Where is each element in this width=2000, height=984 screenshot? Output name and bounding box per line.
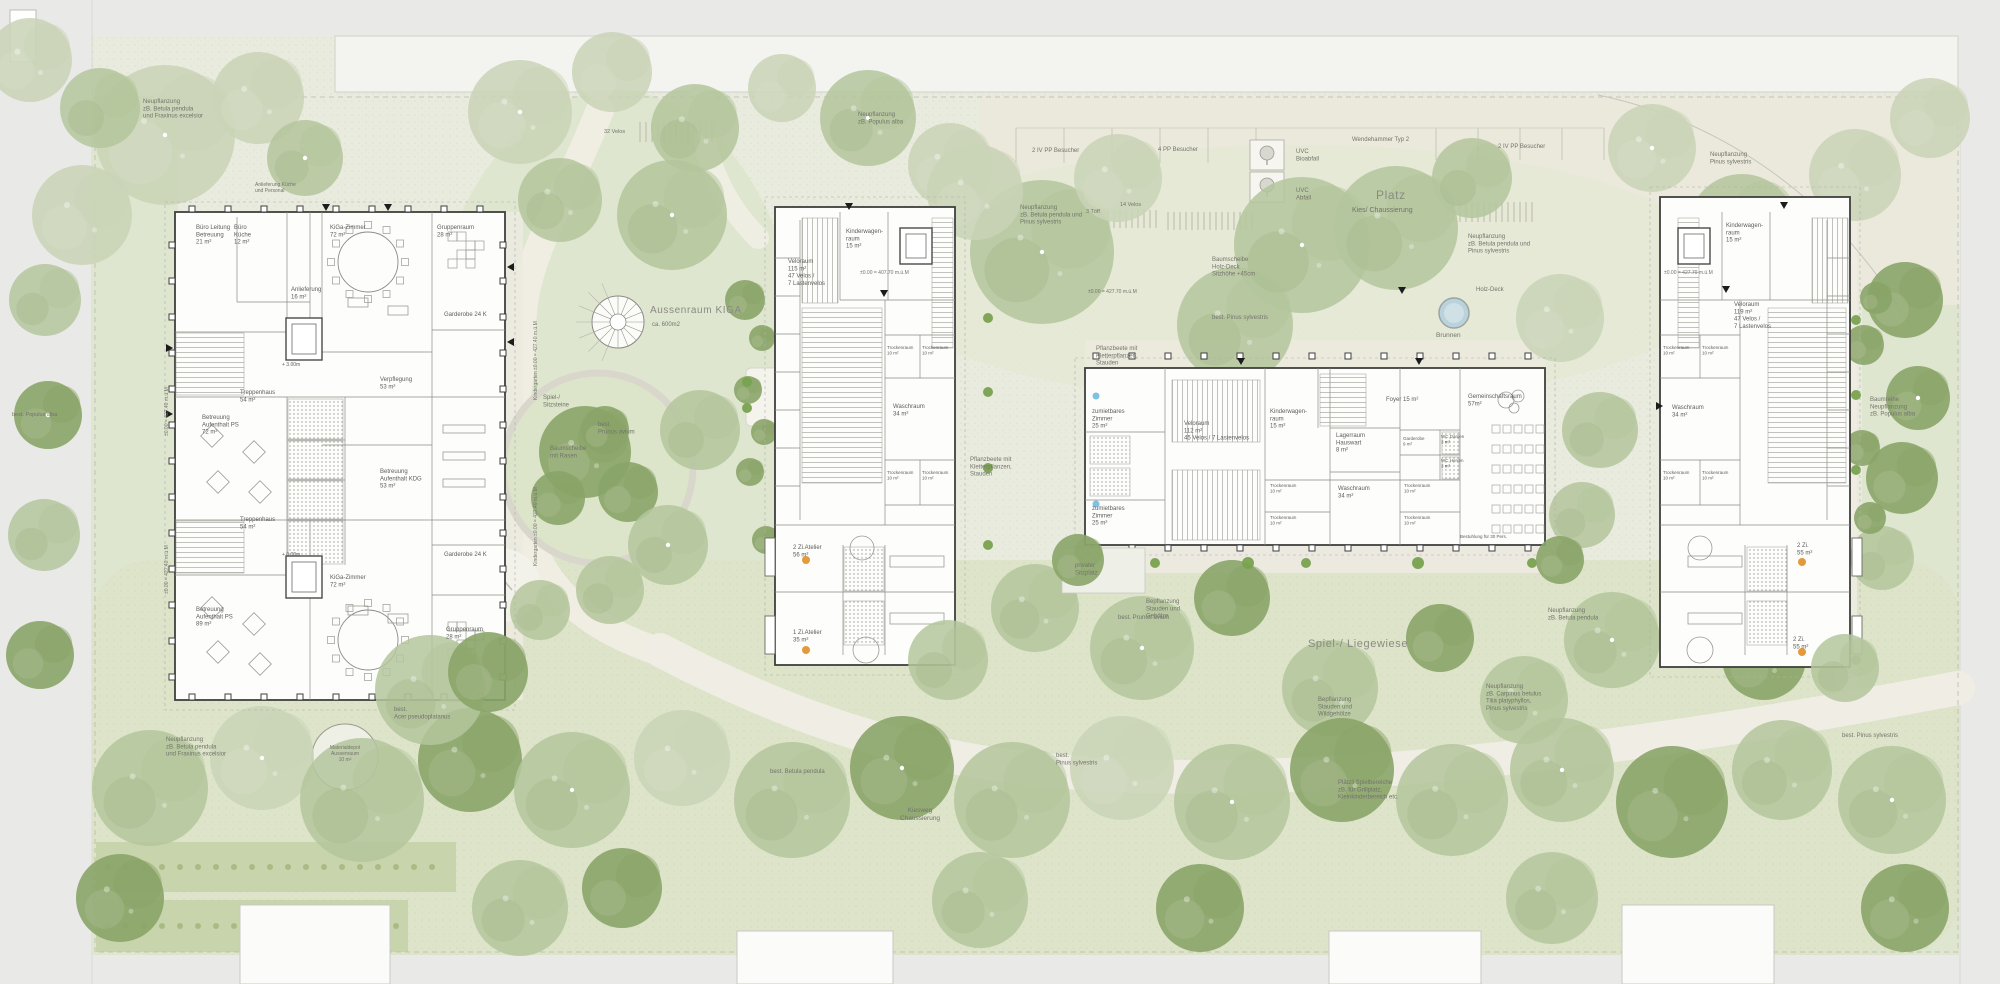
- wet-cell: [844, 547, 884, 591]
- tree: [651, 84, 739, 172]
- shrub: [1851, 390, 1861, 400]
- column: [369, 206, 375, 212]
- tree: [1070, 716, 1174, 820]
- tree: [1562, 392, 1638, 468]
- room-label: Bestuhlung für 30 Pers.: [1460, 534, 1507, 539]
- tree: [468, 60, 572, 164]
- column: [169, 674, 175, 680]
- column: [169, 314, 175, 320]
- column: [1273, 353, 1279, 359]
- orange-dot: [802, 646, 810, 654]
- tree: [634, 710, 730, 806]
- column: [169, 242, 175, 248]
- column: [500, 314, 506, 320]
- tree: [1838, 746, 1946, 854]
- tree: [1396, 744, 1508, 856]
- shrub: [1412, 557, 1424, 569]
- tree: [300, 738, 424, 862]
- shrub: [1851, 465, 1861, 475]
- tree: [734, 742, 850, 858]
- land-label: best. Pinus sylvestris: [1212, 315, 1268, 321]
- shrub: [1527, 558, 1537, 568]
- tree: [1564, 592, 1660, 688]
- wet-cell: [288, 441, 343, 479]
- fountain-brunnen: [1439, 298, 1469, 328]
- shrub: [983, 313, 993, 323]
- column: [1381, 353, 1387, 359]
- cut-building: [1622, 905, 1774, 984]
- land-label: 4 PP Besucher: [1158, 147, 1198, 153]
- column: [333, 694, 339, 700]
- land-label: Kindergarten ±0.00 = 427.40 m.ü.M: [533, 321, 539, 400]
- building-kiga: [165, 202, 515, 710]
- shrub: [1150, 558, 1160, 568]
- tree: [749, 325, 775, 351]
- column: [1273, 545, 1279, 551]
- column: [477, 206, 483, 212]
- shrub: [1851, 315, 1861, 325]
- stairs: [1320, 374, 1366, 426]
- tree: [1156, 864, 1244, 952]
- wet-cell: [844, 601, 884, 645]
- land-label: Kies/ Chaussierung: [1352, 207, 1413, 214]
- land-label: best. Betula pendula: [770, 769, 825, 775]
- column: [297, 694, 303, 700]
- tree: [210, 706, 314, 810]
- stairs: [1768, 308, 1846, 483]
- land-label: Holz-Deck: [1476, 287, 1505, 293]
- tree: [32, 165, 132, 265]
- cut-building: [1329, 931, 1481, 984]
- shrub: [983, 540, 993, 550]
- tree: [736, 458, 764, 486]
- stairs: [1812, 218, 1848, 303]
- elevator: [1678, 228, 1710, 264]
- tree: [6, 621, 74, 689]
- column: [500, 458, 506, 464]
- land-label: Platz: [1376, 188, 1406, 202]
- column: [169, 638, 175, 644]
- elevator: [900, 228, 932, 264]
- column: [189, 206, 195, 212]
- column: [369, 694, 375, 700]
- land-label: ±0.00 = 427.70 m.ü.M: [1664, 270, 1713, 276]
- land-label: ±0.00 = 407.70 m.ü.M: [860, 270, 909, 276]
- tree: [1861, 864, 1949, 952]
- tree: [1174, 744, 1290, 860]
- column: [225, 694, 231, 700]
- land-label: ±0.00 = 427.40 m.ü.M: [164, 387, 170, 436]
- column: [1165, 545, 1171, 551]
- balcony: [1852, 538, 1862, 576]
- column: [1489, 545, 1495, 551]
- shrub: [742, 403, 752, 413]
- site-plan: NeupflanzungzB. Betula pendulaund Fraxin…: [0, 0, 2000, 984]
- shrub: [1242, 557, 1254, 569]
- tree: [510, 580, 570, 640]
- room-label: + 0.00m: [282, 552, 300, 558]
- blue-dot: [1093, 393, 1100, 400]
- column: [500, 602, 506, 608]
- tree: [908, 620, 988, 700]
- column: [500, 242, 506, 248]
- wet-cell: [1747, 547, 1787, 591]
- land-label: Spiel-/ Liegewiese: [1308, 638, 1408, 650]
- column: [169, 602, 175, 608]
- column: [500, 278, 506, 284]
- tree: [1510, 718, 1614, 822]
- land-label: Kindergarten ±0.00 = 427.40 m.ü.M: [533, 487, 539, 566]
- balcony: [765, 538, 775, 576]
- cut-building: [240, 905, 390, 984]
- column: [169, 530, 175, 536]
- land-label: best. Prunus avium: [1118, 615, 1169, 621]
- tree: [1890, 78, 1970, 158]
- tree: [617, 160, 727, 270]
- tree: [582, 848, 662, 928]
- tree: [850, 716, 954, 820]
- tree: [518, 158, 602, 242]
- plan-canvas: NeupflanzungzB. Betula pendulaund Fraxin…: [0, 0, 2000, 984]
- tree: [1608, 104, 1696, 192]
- land-label: NeupflanzungPinus sylvestris: [1710, 152, 1751, 165]
- tree: [1052, 534, 1104, 586]
- column: [1489, 353, 1495, 359]
- tree: [514, 732, 630, 848]
- wet-cell: [288, 481, 343, 519]
- column: [500, 530, 506, 536]
- tree: [472, 860, 568, 956]
- tree: [660, 390, 740, 470]
- column: [169, 278, 175, 284]
- stairs: [176, 521, 244, 573]
- land-label: Wendehammer Typ 2: [1352, 137, 1410, 143]
- land-label: 14 Velos: [1120, 202, 1141, 208]
- column: [1201, 353, 1207, 359]
- balcony: [765, 616, 775, 654]
- tree: [1860, 282, 1892, 314]
- land-label: 2 IV PP Besucher: [1032, 148, 1079, 154]
- land-label: 2 IV PP Besucher: [1498, 144, 1545, 150]
- tree: [1290, 718, 1394, 822]
- tree: [1432, 138, 1512, 218]
- stairs: [802, 308, 882, 483]
- tree: [932, 852, 1028, 948]
- tree: [8, 499, 80, 571]
- tree: [448, 632, 528, 712]
- room-label: Garderobe 24 K: [444, 552, 487, 558]
- tree: [1536, 536, 1584, 584]
- tree: [1506, 852, 1598, 944]
- room-label: + 3.00m: [282, 362, 300, 368]
- column: [297, 206, 303, 212]
- column: [1237, 545, 1243, 551]
- land-label: 32 Velos: [604, 129, 625, 135]
- land-label: ±0.00 = 427.70 m.ü.M: [1088, 289, 1137, 295]
- room-label: Garderobe 24 K: [444, 312, 487, 318]
- building-haus-ost: [1650, 187, 1862, 677]
- tree: [954, 742, 1070, 858]
- column: [500, 422, 506, 428]
- column: [261, 694, 267, 700]
- shrub: [1301, 558, 1311, 568]
- column: [441, 206, 447, 212]
- tree: [1811, 634, 1879, 702]
- stairs: [176, 333, 244, 395]
- column: [1345, 545, 1351, 551]
- wet-cell: [1747, 601, 1787, 645]
- tree: [1516, 274, 1604, 362]
- column: [1417, 545, 1423, 551]
- land-label: 3 Töff: [1086, 209, 1100, 215]
- tree: [60, 68, 140, 148]
- column: [169, 494, 175, 500]
- column: [169, 350, 175, 356]
- land-label: best. Populus alba: [12, 412, 58, 418]
- land-label: ca. 600m2: [652, 322, 681, 328]
- column: [405, 206, 411, 212]
- wet-cell: [1090, 436, 1130, 464]
- uvc-bioabfall-box: [1250, 140, 1284, 170]
- column: [261, 206, 267, 212]
- column: [1453, 353, 1459, 359]
- tree: [1406, 604, 1474, 672]
- tree: [751, 419, 777, 445]
- room-label: Foyer 15 m²: [1386, 397, 1418, 403]
- tree: [531, 471, 585, 525]
- column: [1309, 545, 1315, 551]
- tree: [572, 32, 652, 112]
- column: [500, 350, 506, 356]
- stairs: [932, 218, 953, 348]
- land-label: best. Pinus sylvestris: [1842, 733, 1898, 739]
- column: [1201, 545, 1207, 551]
- land-label: Brunnen: [1436, 332, 1461, 339]
- stairs: [1172, 470, 1260, 540]
- column: [1525, 545, 1531, 551]
- wet-cell: [1090, 468, 1130, 496]
- column: [225, 206, 231, 212]
- land-label: ±0.00 = 427.40 m.ü.M: [164, 545, 170, 594]
- cut-building: [737, 931, 893, 984]
- tree: [1732, 720, 1832, 820]
- column: [500, 566, 506, 572]
- shrub: [742, 377, 752, 387]
- tree: [1854, 502, 1886, 534]
- land-label: BepflanzungStauden undWildgehölze: [1318, 697, 1352, 718]
- land-label: Aussenraum KIGA: [650, 305, 742, 316]
- column: [1165, 353, 1171, 359]
- column: [1309, 353, 1315, 359]
- column: [1345, 353, 1351, 359]
- orange-dot: [1798, 558, 1806, 566]
- column: [1453, 545, 1459, 551]
- column: [169, 458, 175, 464]
- tree: [576, 556, 644, 624]
- column: [189, 694, 195, 700]
- column: [1381, 545, 1387, 551]
- tree: [1616, 746, 1728, 858]
- wet-cell: [288, 399, 343, 439]
- tree: [9, 264, 81, 336]
- column: [333, 206, 339, 212]
- column: [500, 494, 506, 500]
- shrub: [983, 387, 993, 397]
- tree: [820, 70, 916, 166]
- tree: [748, 54, 816, 122]
- column: [1525, 353, 1531, 359]
- column: [500, 386, 506, 392]
- tree: [76, 854, 164, 942]
- tree: [1194, 560, 1270, 636]
- land-label: privaterSitzplatz: [1075, 563, 1098, 576]
